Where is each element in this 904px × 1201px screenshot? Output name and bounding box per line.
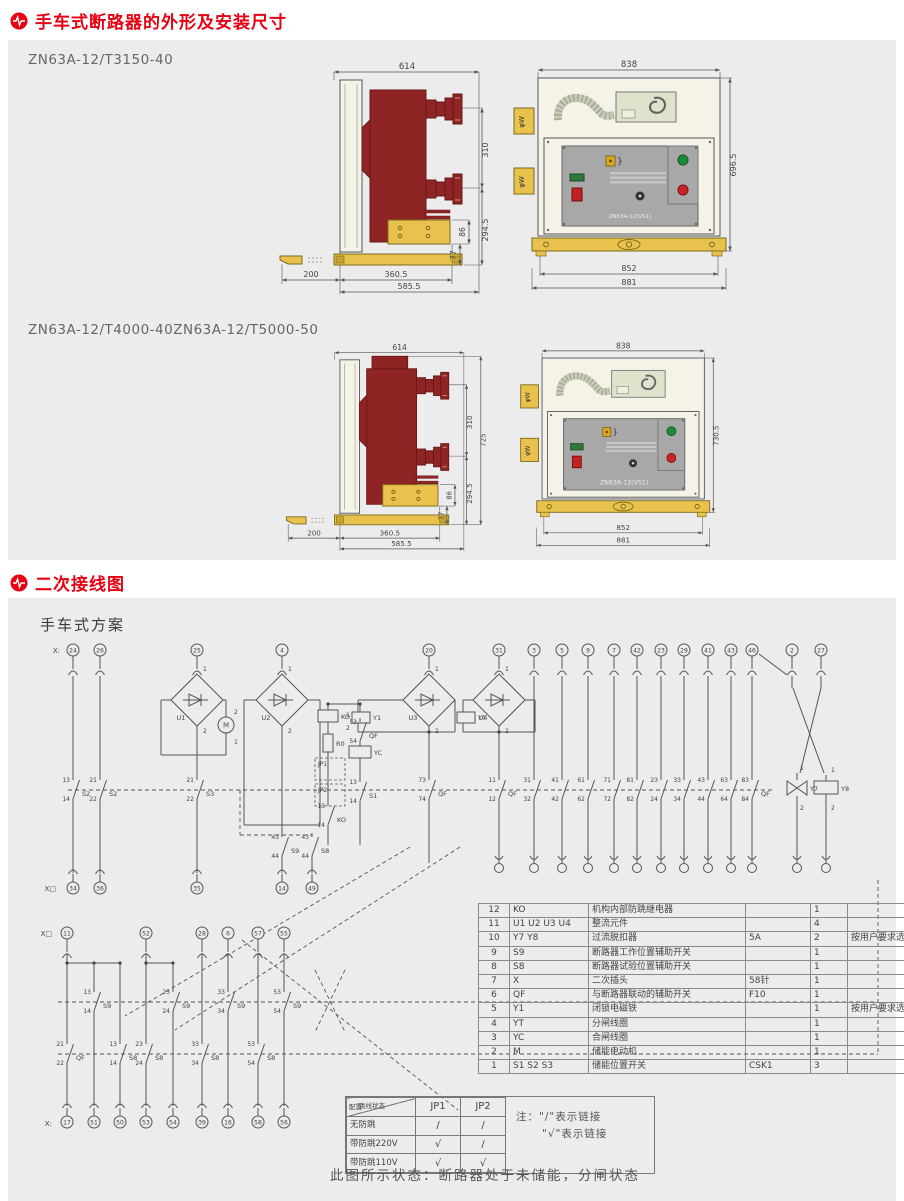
dim-360-label: 360.5 <box>380 528 400 537</box>
terminal: 51 <box>88 1104 100 1128</box>
junction-dot <box>326 702 329 705</box>
component-table-cell: 合闸线圈 <box>589 1031 746 1045</box>
contact: 7172 <box>603 776 620 803</box>
plug-arc <box>584 671 593 675</box>
mount-bracket <box>383 485 438 506</box>
row-label-a: X□ <box>45 885 56 893</box>
terminal: 3 <box>528 644 540 675</box>
component-table-row: 6QF与断路器联动的辅助开关F101 <box>479 989 904 1003</box>
arrow-head <box>336 278 341 282</box>
arrow-head <box>340 537 344 540</box>
dim-310-label: 310 <box>481 142 490 157</box>
component-table-row: 3YC合闸线圈1 <box>479 1031 904 1045</box>
pin-label: 2 <box>234 709 238 716</box>
wire <box>759 654 787 675</box>
pole-fin <box>424 216 450 219</box>
bushing-rib <box>417 378 426 394</box>
plug-arc <box>680 671 689 675</box>
component-table-cell <box>746 918 811 932</box>
line <box>360 782 367 801</box>
component-table-cell <box>848 989 904 1003</box>
terminal-number: 35 <box>193 885 201 892</box>
knob-center <box>632 462 634 464</box>
arrow-head <box>340 278 345 282</box>
pin: 1 <box>288 666 292 673</box>
component-table-cell <box>848 960 904 974</box>
arrow-head <box>340 547 344 550</box>
component-table-cell: 4 <box>479 1017 510 1031</box>
contact-pin-top: 41 <box>551 777 559 784</box>
component-table-cell <box>746 1017 811 1031</box>
bushing-flange <box>453 94 462 124</box>
contact-pin-top: 23 <box>650 777 658 784</box>
terminal-circle-small <box>633 864 642 873</box>
screw <box>694 493 696 495</box>
terminal: 16 <box>222 1104 234 1128</box>
dim-838-label: 838 <box>621 60 637 70</box>
contact-device: QF <box>369 732 378 740</box>
terminal-number: 52 <box>142 930 150 937</box>
contact-device: S8 <box>321 847 329 855</box>
component-table-cell: Y7 Y8 <box>510 932 589 946</box>
contact-pin-top: 23 <box>162 989 170 996</box>
plug-arc <box>788 671 797 675</box>
pole-fin <box>415 476 438 479</box>
component-table-cell <box>746 960 811 974</box>
terminal: 14 <box>276 870 288 894</box>
component-table-cell: 机构内部防跳继电器 <box>589 904 746 918</box>
component-table-cell: YC <box>510 1031 589 1045</box>
coil-label: YT <box>477 714 486 722</box>
component-table: 12KO机构内部防跳继电器111U1 U2 U3 U4整流元件410Y7 Y8过… <box>478 903 904 1074</box>
dim-200-label: 200 <box>303 270 318 279</box>
nameplate: ZN63A-12(VS1) <box>600 480 648 487</box>
arrow-head <box>334 70 339 74</box>
arrow-head <box>712 508 715 512</box>
jumper-table: 跳线状态 配置 JP1 JP2 无防跳//带防跳220V√/带防跳110V√√ <box>346 1097 506 1173</box>
mode-switch <box>572 188 582 201</box>
pin-label: 1 <box>234 739 238 746</box>
contact-pin-top: 53 <box>273 989 281 996</box>
terminal: 53 <box>140 1104 152 1128</box>
component-table-row: 7X二次插头58针1 <box>479 974 904 988</box>
plug-arc <box>748 671 757 675</box>
component-table-cell: 1 <box>811 946 848 960</box>
arrow-head <box>465 452 468 456</box>
component-table-cell: 12 <box>479 904 510 918</box>
dim-585-label: 585.5 <box>398 282 421 291</box>
component-table-cell: 11 <box>479 918 510 932</box>
bushing-rib <box>445 178 453 200</box>
resistor-box <box>323 734 333 752</box>
line <box>100 780 107 799</box>
component-table-cell: 分闸线圈 <box>589 1017 746 1031</box>
plug-arc <box>530 671 539 675</box>
terminal-number: 39 <box>198 1119 206 1126</box>
model-label-2b: ZN63A-12/T5000-50 <box>173 322 318 338</box>
component-table-cell: YT <box>510 1017 589 1031</box>
arrow-head <box>728 247 732 252</box>
front-view: 838}ZN63A-12(VS1)φWφW696.5852881 <box>514 60 738 290</box>
contact-pin-top: 33 <box>191 1041 199 1048</box>
terminal-number: 28 <box>198 930 206 937</box>
component-table-cell: 储能电动机 <box>589 1045 746 1059</box>
line <box>120 1044 127 1063</box>
line <box>328 806 335 825</box>
line <box>146 1044 153 1063</box>
model-label-2a: ZN63A-12/T4000-40 <box>28 322 173 338</box>
terminal-number: 58 <box>254 1119 262 1126</box>
row-label-b: X□ <box>41 930 52 938</box>
dim-852-label: 852 <box>616 523 630 532</box>
terminal: 5 <box>556 644 568 675</box>
plug-arc <box>558 671 567 675</box>
arrow-head <box>542 349 546 352</box>
component-table-cell <box>746 904 811 918</box>
terminal-circle-small <box>680 864 689 873</box>
arrow-head <box>335 351 339 354</box>
pin: 2 <box>435 728 439 735</box>
counter-window <box>571 444 583 450</box>
plug-arc <box>657 671 666 675</box>
contact-pin-top: 53 <box>247 1041 255 1048</box>
terminal-number: 51 <box>90 1119 98 1126</box>
contact-pin-bottom: 14 <box>317 822 325 829</box>
contact-pin-top: 23 <box>135 1041 143 1048</box>
bridge-label: U2 <box>262 714 271 722</box>
knob-center <box>639 195 642 198</box>
terminal-number: 24 <box>69 647 77 654</box>
contact: 1314S2 <box>62 776 90 803</box>
terminal-circle-small <box>495 864 504 873</box>
pin-label: 1 <box>346 712 350 719</box>
panel-mark: } <box>613 428 618 437</box>
coil-box <box>457 712 475 723</box>
component-table-cell: 1 <box>811 974 848 988</box>
screw <box>564 487 566 489</box>
line <box>752 780 759 799</box>
foot <box>697 512 706 516</box>
component-table-cell: 7 <box>479 974 510 988</box>
indicator-dot <box>609 160 612 163</box>
component-table-cell: 58针 <box>746 974 811 988</box>
terminal: 23 <box>655 644 667 675</box>
arrow-head <box>475 290 480 294</box>
terminal: 25 <box>191 644 203 675</box>
contact-pin-top: 43 <box>697 777 705 784</box>
pin-label: 1 <box>800 765 804 772</box>
contact-pin-top: 21 <box>89 777 97 784</box>
row-label-bottom: X: <box>45 1120 52 1128</box>
resistor-label: R0 <box>336 740 345 748</box>
terminal: 29 <box>678 644 690 675</box>
contact: 3132 <box>523 776 540 803</box>
side-tab-label: φW <box>525 446 532 456</box>
contact-pin-top: 13 <box>83 989 91 996</box>
front-view-drawing-2: 838}ZN63A-12(VS1)φWφW730.5852881 <box>506 342 744 556</box>
component-table-cell: KO <box>510 904 589 918</box>
jumper-corner-bottom: 配置 <box>349 1099 362 1116</box>
contact-pin-bottom: 84 <box>741 796 749 803</box>
component-table-cell: 10 <box>479 932 510 946</box>
arrow-head <box>336 537 340 540</box>
dim-881-label: 881 <box>616 536 630 545</box>
section-outline-header: 手车式断路器的外形及安装尺寸 <box>10 8 287 33</box>
component-table-row: 8S8断路器试验位置辅助开关1 <box>479 960 904 974</box>
terminal: 58 <box>252 1104 264 1128</box>
terminal-number: 43 <box>727 647 735 654</box>
pin: 1 <box>505 666 509 673</box>
pole-fin <box>424 210 450 213</box>
terminal: 27 <box>815 644 827 675</box>
bridge-label: U3 <box>409 714 418 722</box>
junction-dot <box>497 730 500 733</box>
arrow-head <box>467 240 471 245</box>
contact: 4142 <box>551 776 568 803</box>
arrow-head <box>465 521 468 525</box>
junction-dot <box>144 961 147 964</box>
terminal: 39 <box>196 1104 208 1128</box>
contact-pin-bottom: 44 <box>697 796 705 803</box>
contact-pin-top: 71 <box>603 777 611 784</box>
arrow-head <box>532 286 537 290</box>
contact-pin-top: 13 <box>62 777 70 784</box>
bushing-flange <box>441 444 449 471</box>
side-view: 614310294.58677725200360.5585.5 <box>286 343 487 551</box>
component-table-wrap: 12KO机构内部防跳继电器111U1 U2 U3 U4整流元件410Y7 Y8过… <box>478 903 904 1074</box>
base-rail <box>334 254 462 265</box>
foot <box>536 251 546 256</box>
dim-360-label: 360.5 <box>385 270 408 279</box>
dim-614-label: 614 <box>392 343 407 352</box>
contact-pin-top: 13 <box>317 803 325 810</box>
contact-pin-bottom: 22 <box>89 796 97 803</box>
arrow-head <box>728 78 732 83</box>
dim-881-label: 881 <box>621 278 636 287</box>
contact: 1314S8 <box>109 1040 137 1067</box>
line <box>614 780 621 799</box>
terminal-number: 20 <box>425 647 433 654</box>
pin-label: 2 <box>800 805 804 812</box>
contact-pin-top: 31 <box>523 777 531 784</box>
plug-arc <box>727 671 736 675</box>
arrow-head <box>475 70 480 74</box>
contact-pin-bottom: 34 <box>673 796 681 803</box>
contact-pin-bottom: 72 <box>603 796 611 803</box>
side-tab-label: φW <box>518 176 526 188</box>
arrow-head <box>453 485 456 489</box>
side-tab-label: φW <box>525 392 532 402</box>
outline-panel: ZN63A-12/T3150-40 614310294.58677200360.… <box>8 40 896 560</box>
junction-dot <box>171 961 174 964</box>
contact-pin-bottom: 22 <box>186 796 194 803</box>
arrow-head <box>712 358 715 362</box>
junction-dot <box>358 702 361 705</box>
component-table-cell: 1 <box>811 960 848 974</box>
contact-pin-bottom: 74 <box>418 796 426 803</box>
jumper-row-label: 带防跳220V <box>347 1135 416 1154</box>
side-tab-label: φW <box>518 116 526 128</box>
mode-switch <box>572 456 581 468</box>
terminal-circle-small <box>530 864 539 873</box>
arrow-head <box>445 506 448 510</box>
component-table-cell <box>848 1045 904 1059</box>
pin-label: 2 <box>346 725 350 732</box>
component-table-cell <box>848 946 904 960</box>
contact: 6364 <box>720 776 737 803</box>
contact-pin-bottom: 12 <box>488 796 496 803</box>
junction-dot <box>65 961 68 964</box>
contact-pin-bottom: 34 <box>191 1060 199 1067</box>
screw <box>564 419 566 421</box>
arrow-head <box>465 456 468 460</box>
red-button <box>678 185 688 195</box>
arrow-head <box>480 108 484 113</box>
arrow-head <box>479 521 482 525</box>
contact: 2324S9 <box>162 988 190 1015</box>
contact-pin-top: 33 <box>673 777 681 784</box>
contact-pin-bottom: 14 <box>83 1008 91 1015</box>
contact-pin-bottom: 44 <box>301 853 309 860</box>
terminal-number: 23 <box>657 647 665 654</box>
component-table-cell <box>746 1003 811 1017</box>
breaker-body <box>367 369 417 505</box>
contact: 3334S8 <box>191 1040 219 1067</box>
component-table-cell: 二次插头 <box>589 974 746 988</box>
jumper-value: / <box>461 1135 506 1154</box>
arrow-head <box>714 272 719 276</box>
component-table-cell: S1 S2 S3 <box>510 1060 589 1074</box>
bushing-rib <box>426 100 436 118</box>
component-table-row: 1S1 S2 S3储能位置开关CSK13 <box>479 1060 904 1074</box>
component-table-cell: 按用户要求选配 <box>848 1003 904 1017</box>
side-view: 614310294.58677200360.5585.5 <box>280 62 490 294</box>
line <box>94 992 101 1011</box>
side-view-drawing-2: 614310294.58677725200360.5585.5 <box>276 342 493 556</box>
indicator-dot <box>605 431 607 433</box>
breaker-body <box>370 90 426 242</box>
contact-pin-top: 11 <box>488 777 496 784</box>
arrow-head <box>458 244 462 249</box>
contact: 5354S8 <box>247 1040 275 1067</box>
terminal-number: 2 <box>790 647 794 654</box>
component-table-cell: 1 <box>811 1031 848 1045</box>
screw <box>550 493 552 495</box>
contact-pin-bottom: 44 <box>271 853 279 860</box>
contact: 1112QF <box>488 776 517 803</box>
hook-slot <box>622 110 635 118</box>
arrow-head <box>716 68 721 72</box>
component-table-row: 5Y1闭锁电磁铁1按用户要求选配 <box>479 1003 904 1017</box>
bushing-rib <box>434 376 441 396</box>
jumper-corner-top: 跳线状态 <box>359 1098 385 1115</box>
contact: 4344S8 <box>301 833 329 860</box>
contact-pin-bottom: 64 <box>720 796 728 803</box>
contact: 2324S8 <box>135 1040 163 1067</box>
terminal: 46 <box>746 644 758 675</box>
line <box>708 780 715 799</box>
component-table-cell: 1 <box>811 989 848 1003</box>
model-label-2: ZN63A-12/T4000-40ZN63A-12/T5000-50 <box>28 322 318 338</box>
bridge-label: U1 <box>177 714 186 722</box>
screw <box>695 147 697 149</box>
wire <box>800 688 821 773</box>
jumper-config-box: 跳线状态 配置 JP1 JP2 无防跳//带防跳220V√/带防跳110V√√ … <box>345 1096 655 1174</box>
contact: 8182 <box>626 776 643 803</box>
motor: M <box>218 717 234 733</box>
arrow-head <box>288 537 292 540</box>
rectifier-bridge: U112 <box>171 666 223 735</box>
bushing-rib <box>426 180 436 198</box>
screw <box>695 223 697 225</box>
component-table-cell <box>746 1045 811 1059</box>
contact: 2122S2 <box>89 776 117 803</box>
bushing-rib <box>426 451 434 463</box>
arrow-head <box>453 502 456 506</box>
terminal-number: 16 <box>224 1119 232 1126</box>
foot <box>540 512 549 516</box>
bushing-rib <box>436 102 445 116</box>
rectifier-bridge: U412 <box>473 666 525 735</box>
label-strip <box>610 172 666 174</box>
contact-device: S9 <box>182 1002 190 1010</box>
coil: YC <box>349 746 383 758</box>
terminal: 35 <box>191 870 203 894</box>
dim-200-label: 200 <box>307 528 321 537</box>
line <box>197 780 204 799</box>
pin-label: 2 <box>831 805 835 812</box>
terminal: 41 <box>702 644 714 675</box>
jumper-note: 注："/"表示链接 "√"表示链接 <box>506 1097 613 1173</box>
line <box>73 780 80 799</box>
section-outline-title: 手车式断路器的外形及安装尺寸 <box>35 8 287 33</box>
bowtie <box>787 781 797 795</box>
component-table-cell <box>848 1017 904 1031</box>
body-front <box>360 396 367 448</box>
terminal: 26 <box>94 644 106 675</box>
line <box>588 780 595 799</box>
contact-device: S9 <box>291 847 299 855</box>
red-button <box>667 453 676 462</box>
terminal-number: 50 <box>116 1119 124 1126</box>
terminal-number: 27 <box>817 647 825 654</box>
dim-585-label: 585.5 <box>391 539 411 548</box>
terminal: 2 <box>786 644 798 675</box>
terminal-number: 29 <box>680 647 688 654</box>
contact: 1314S9 <box>83 988 111 1015</box>
terminal-number: 3 <box>532 647 536 654</box>
component-table-cell: CSK1 <box>746 1060 811 1074</box>
arrow-head <box>467 220 471 225</box>
component-table-cell <box>848 1060 904 1074</box>
terminal-circle-small <box>727 864 736 873</box>
arrow-head <box>480 188 484 193</box>
label-strip <box>606 442 656 444</box>
screw <box>547 141 549 143</box>
terminal-circle-small <box>822 864 831 873</box>
component-table-cell: S8 <box>510 960 589 974</box>
secondary-wiring-schematic: U112U212U312U412MKOYCY1YTY8R0JP1JP2Y7211… <box>30 640 882 1152</box>
terminal-number: 57 <box>254 930 262 937</box>
component-table-cell: U1 U2 U3 U4 <box>510 918 589 932</box>
contact-device: S8 <box>267 1054 275 1062</box>
pin: 1 <box>203 666 207 673</box>
component-table-cell: 1 <box>811 1017 848 1031</box>
section-wiring-header: 二次接线图 <box>10 570 125 595</box>
frame-plate <box>340 80 362 252</box>
contact-pin-bottom: 42 <box>551 796 559 803</box>
contact-device: S9 <box>237 1002 245 1010</box>
